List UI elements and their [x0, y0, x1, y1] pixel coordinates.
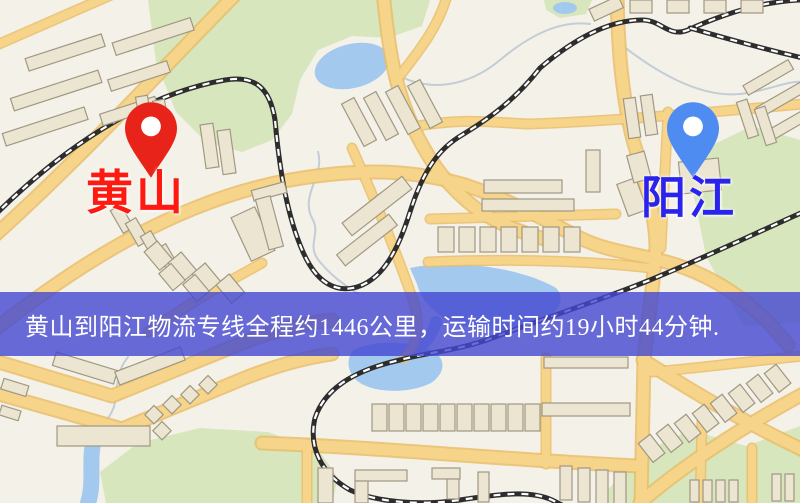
map-view: 黄山 阳江 黄山到阳江物流专线全程约1446公里，运输时间约19小时44分钟.	[0, 0, 800, 503]
origin-pin[interactable]	[125, 102, 177, 178]
origin-pin-icon	[125, 102, 177, 178]
origin-label: 黄山	[86, 170, 186, 219]
route-info-banner: 黄山到阳江物流专线全程约1446公里，运输时间约19小时44分钟.	[0, 292, 800, 356]
destination-pin-icon	[667, 102, 719, 178]
destination-pin[interactable]	[667, 102, 719, 178]
route-info-text: 黄山到阳江物流专线全程约1446公里，运输时间约19小时44分钟.	[0, 307, 720, 342]
map-canvas[interactable]	[0, 0, 800, 503]
destination-label: 阳江	[641, 175, 737, 222]
